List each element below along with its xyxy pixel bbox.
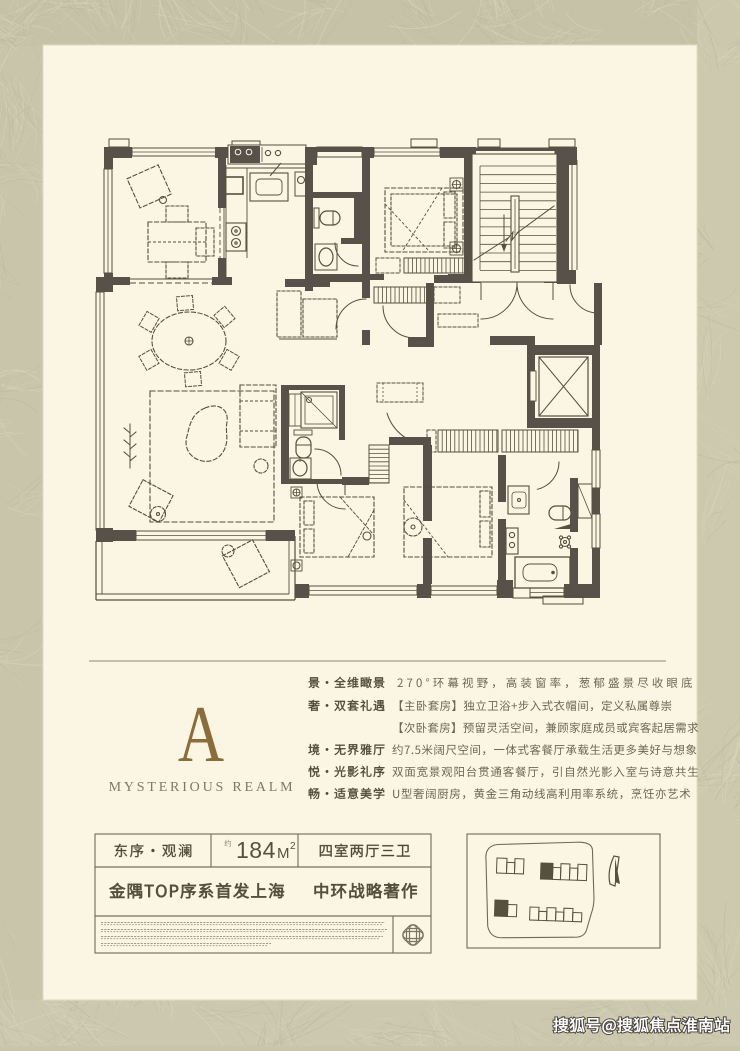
svg-text:MYSTERIOUS REALM: MYSTERIOUS REALM: [109, 780, 296, 795]
svg-text:2: 2: [290, 841, 296, 852]
svg-text:A: A: [178, 689, 224, 778]
svg-text:M: M: [277, 845, 290, 862]
svg-text:184: 184: [236, 837, 276, 863]
